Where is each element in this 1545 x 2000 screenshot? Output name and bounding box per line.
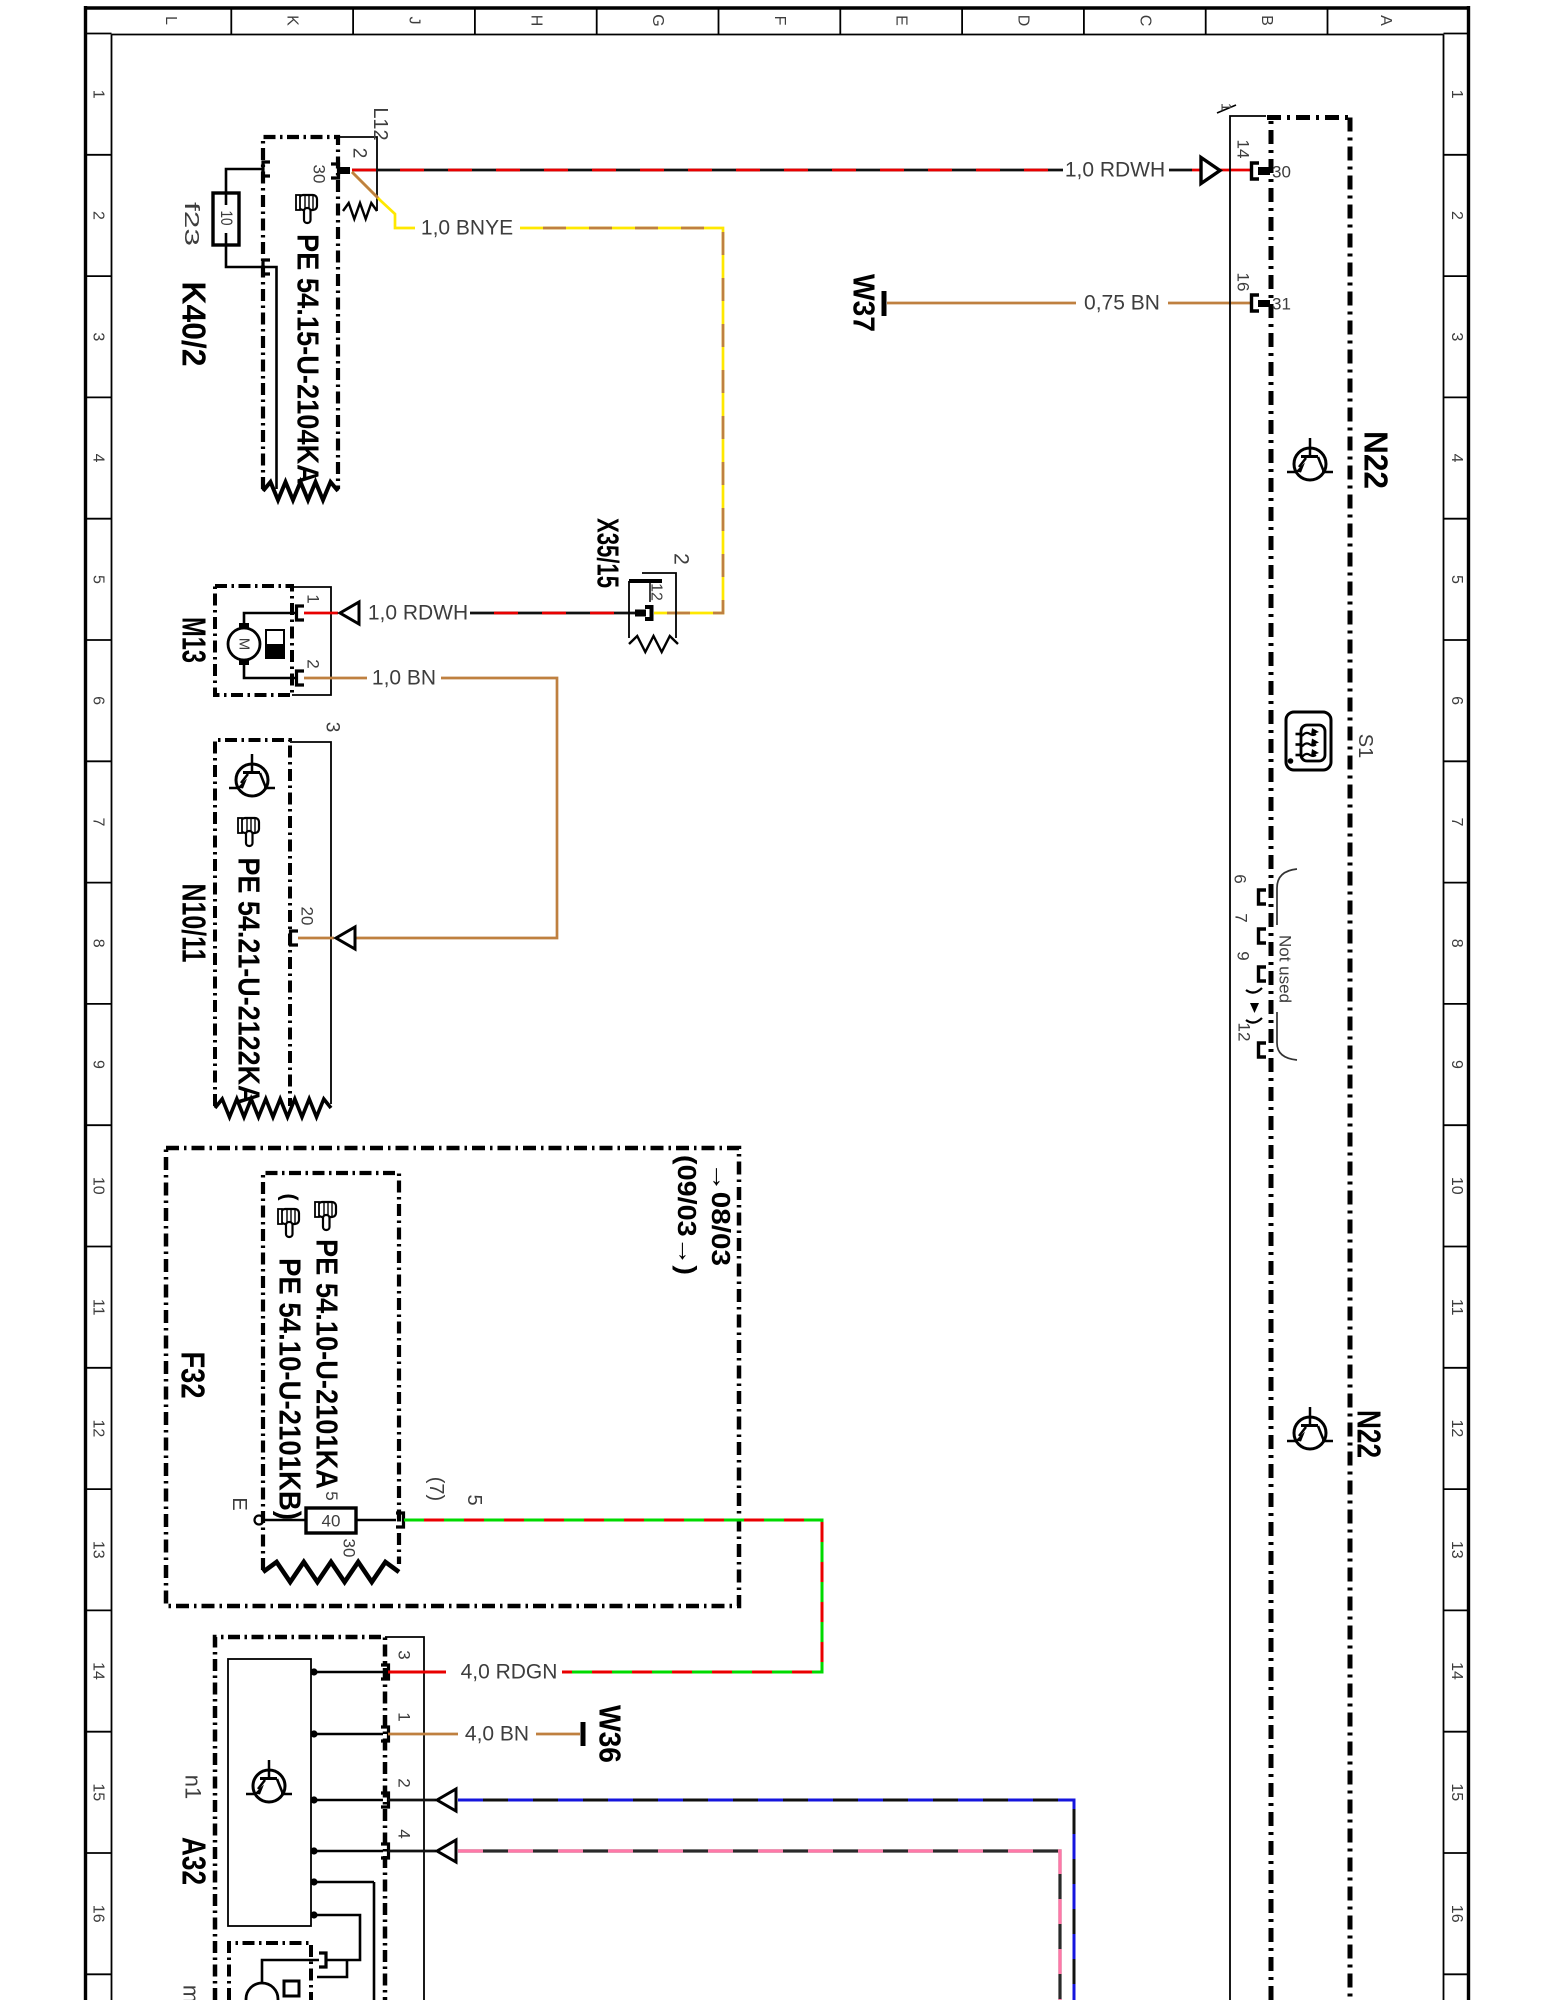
svg-text:1: 1 xyxy=(304,594,323,603)
svg-text:4,0 BN: 4,0 BN xyxy=(465,1723,529,1746)
svg-text:(: ( xyxy=(278,1193,303,1201)
svg-text:M: M xyxy=(236,638,253,651)
svg-text:(7): (7) xyxy=(425,1477,447,1501)
svg-text:10: 10 xyxy=(90,1177,107,1195)
svg-text:14: 14 xyxy=(1234,140,1253,159)
svg-text:4,0 RDGN: 4,0 RDGN xyxy=(461,1661,558,1684)
svg-text:W37: W37 xyxy=(847,274,882,332)
svg-text:12: 12 xyxy=(1448,1420,1465,1438)
svg-text:PE 54.21-U-2122KA: PE 54.21-U-2122KA xyxy=(232,858,267,1105)
svg-text:3: 3 xyxy=(395,1650,414,1659)
svg-text:2: 2 xyxy=(395,1778,414,1787)
svg-text:14: 14 xyxy=(1448,1662,1465,1680)
svg-text:H: H xyxy=(527,15,544,27)
svg-text:C: C xyxy=(1136,15,1153,27)
svg-text:6: 6 xyxy=(1231,874,1250,883)
svg-text:3: 3 xyxy=(322,722,343,733)
svg-text:5: 5 xyxy=(90,575,107,584)
svg-text:f23: f23 xyxy=(180,202,202,246)
svg-text:E: E xyxy=(228,1497,250,1510)
svg-text:11: 11 xyxy=(1448,1299,1465,1316)
svg-text:10: 10 xyxy=(217,211,236,226)
svg-text:3: 3 xyxy=(1448,332,1465,341)
svg-text:PE 54.15-U-2104KA: PE 54.15-U-2104KA xyxy=(291,234,326,484)
svg-text:14: 14 xyxy=(90,1662,107,1680)
svg-text:N22: N22 xyxy=(1358,431,1395,489)
svg-text:1: 1 xyxy=(1448,90,1465,99)
svg-text:F: F xyxy=(771,16,788,26)
svg-text:15: 15 xyxy=(90,1783,107,1801)
svg-text:W36: W36 xyxy=(593,1705,628,1763)
svg-text:9: 9 xyxy=(1234,951,1253,960)
svg-text:D: D xyxy=(1015,15,1032,27)
svg-text:(09/03→): (09/03→) xyxy=(672,1155,702,1275)
svg-text:5: 5 xyxy=(1448,575,1465,584)
svg-text:PE 54.10-U-2101KA: PE 54.10-U-2101KA xyxy=(310,1239,345,1489)
svg-text:11: 11 xyxy=(90,1299,107,1316)
svg-text:10: 10 xyxy=(1448,1177,1465,1195)
svg-text:7: 7 xyxy=(1448,818,1465,827)
svg-text:L: L xyxy=(162,16,179,25)
svg-text:2: 2 xyxy=(304,659,323,668)
svg-text:13: 13 xyxy=(90,1541,107,1559)
svg-text:G: G xyxy=(649,14,666,26)
svg-text:9: 9 xyxy=(1448,1060,1465,1069)
svg-text:Not used: Not used xyxy=(1276,935,1295,1003)
svg-text:6: 6 xyxy=(90,696,107,705)
svg-text:30: 30 xyxy=(1272,163,1291,182)
svg-text:X35/15: X35/15 xyxy=(591,518,626,588)
svg-text:16: 16 xyxy=(1448,1905,1465,1923)
svg-text:2: 2 xyxy=(349,148,370,159)
svg-text:6: 6 xyxy=(1448,696,1465,705)
svg-text:J: J xyxy=(406,17,423,25)
svg-text:4: 4 xyxy=(1448,454,1465,463)
svg-text:n1: n1 xyxy=(181,1775,206,1799)
svg-text:12: 12 xyxy=(90,1420,107,1438)
svg-text:9: 9 xyxy=(90,1060,107,1069)
svg-text:E: E xyxy=(893,15,910,26)
svg-text:1,0 BN: 1,0 BN xyxy=(372,667,436,690)
svg-text:K: K xyxy=(284,15,301,26)
svg-text:1: 1 xyxy=(90,90,107,99)
svg-text:16: 16 xyxy=(1234,273,1253,292)
svg-text:3: 3 xyxy=(90,332,107,341)
svg-text:m: m xyxy=(179,1985,204,2000)
svg-text:40: 40 xyxy=(322,1512,341,1531)
svg-text:5: 5 xyxy=(463,1494,485,1505)
svg-text:→08/03: →08/03 xyxy=(706,1162,736,1266)
svg-text:L12: L12 xyxy=(369,107,391,140)
svg-text:2: 2 xyxy=(670,553,693,565)
svg-text:2: 2 xyxy=(1448,211,1465,220)
svg-text:1,0 RDWH: 1,0 RDWH xyxy=(368,602,468,625)
svg-text:4: 4 xyxy=(90,454,107,463)
svg-text:8: 8 xyxy=(1448,939,1465,948)
svg-text:13: 13 xyxy=(1448,1541,1465,1559)
svg-text:30: 30 xyxy=(310,165,329,184)
svg-text:5: 5 xyxy=(322,1491,341,1500)
svg-text:20: 20 xyxy=(298,907,317,926)
svg-text:1: 1 xyxy=(1218,103,1235,111)
svg-text:S1: S1 xyxy=(1354,734,1376,758)
svg-text:A32: A32 xyxy=(176,1837,213,1885)
svg-text:1: 1 xyxy=(395,1712,414,1721)
svg-text:30: 30 xyxy=(340,1539,359,1558)
svg-text:F32: F32 xyxy=(175,1352,212,1399)
svg-text:K40/2: K40/2 xyxy=(176,282,213,367)
svg-text:4: 4 xyxy=(395,1829,414,1838)
svg-text:12: 12 xyxy=(648,583,665,601)
svg-text:8: 8 xyxy=(90,939,107,948)
svg-text:A: A xyxy=(1377,15,1394,26)
svg-text:2: 2 xyxy=(90,211,107,220)
svg-text:N10/11: N10/11 xyxy=(176,884,213,963)
svg-text:M13: M13 xyxy=(176,617,213,663)
svg-text:15: 15 xyxy=(1448,1783,1465,1801)
svg-text:0,75 BN: 0,75 BN xyxy=(1084,292,1160,315)
svg-text:16: 16 xyxy=(90,1905,107,1923)
svg-text:31: 31 xyxy=(1272,295,1291,314)
svg-text:7: 7 xyxy=(1232,913,1251,922)
svg-text:7: 7 xyxy=(90,818,107,827)
svg-text:1,0 RDWH: 1,0 RDWH xyxy=(1065,159,1165,182)
svg-text:1,0 BNYE: 1,0 BNYE xyxy=(421,217,513,240)
svg-text:PE 54.10-U-2101KB): PE 54.10-U-2101KB) xyxy=(273,1258,308,1520)
svg-text:12: 12 xyxy=(1235,1023,1254,1042)
svg-text:B: B xyxy=(1258,15,1275,26)
svg-text:N22: N22 xyxy=(1351,1410,1388,1458)
